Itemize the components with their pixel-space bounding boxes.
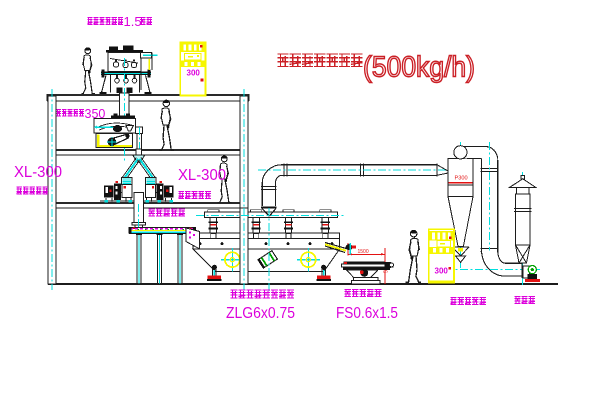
svg-text:300: 300 bbox=[187, 69, 201, 78]
svg-text:(500kg/h): (500kg/h) bbox=[363, 52, 475, 84]
svg-text:P300: P300 bbox=[455, 176, 468, 182]
svg-text:XL-300: XL-300 bbox=[178, 167, 226, 184]
svg-text:350: 350 bbox=[85, 107, 106, 121]
svg-text:1500: 1500 bbox=[358, 249, 369, 255]
svg-text:XL-300: XL-300 bbox=[14, 164, 62, 181]
svg-text:1.5: 1.5 bbox=[124, 14, 142, 29]
svg-text:ZLG6x0.75: ZLG6x0.75 bbox=[226, 305, 295, 322]
svg-text:FS0.6x1.5: FS0.6x1.5 bbox=[336, 305, 398, 322]
svg-text:300: 300 bbox=[435, 267, 449, 276]
